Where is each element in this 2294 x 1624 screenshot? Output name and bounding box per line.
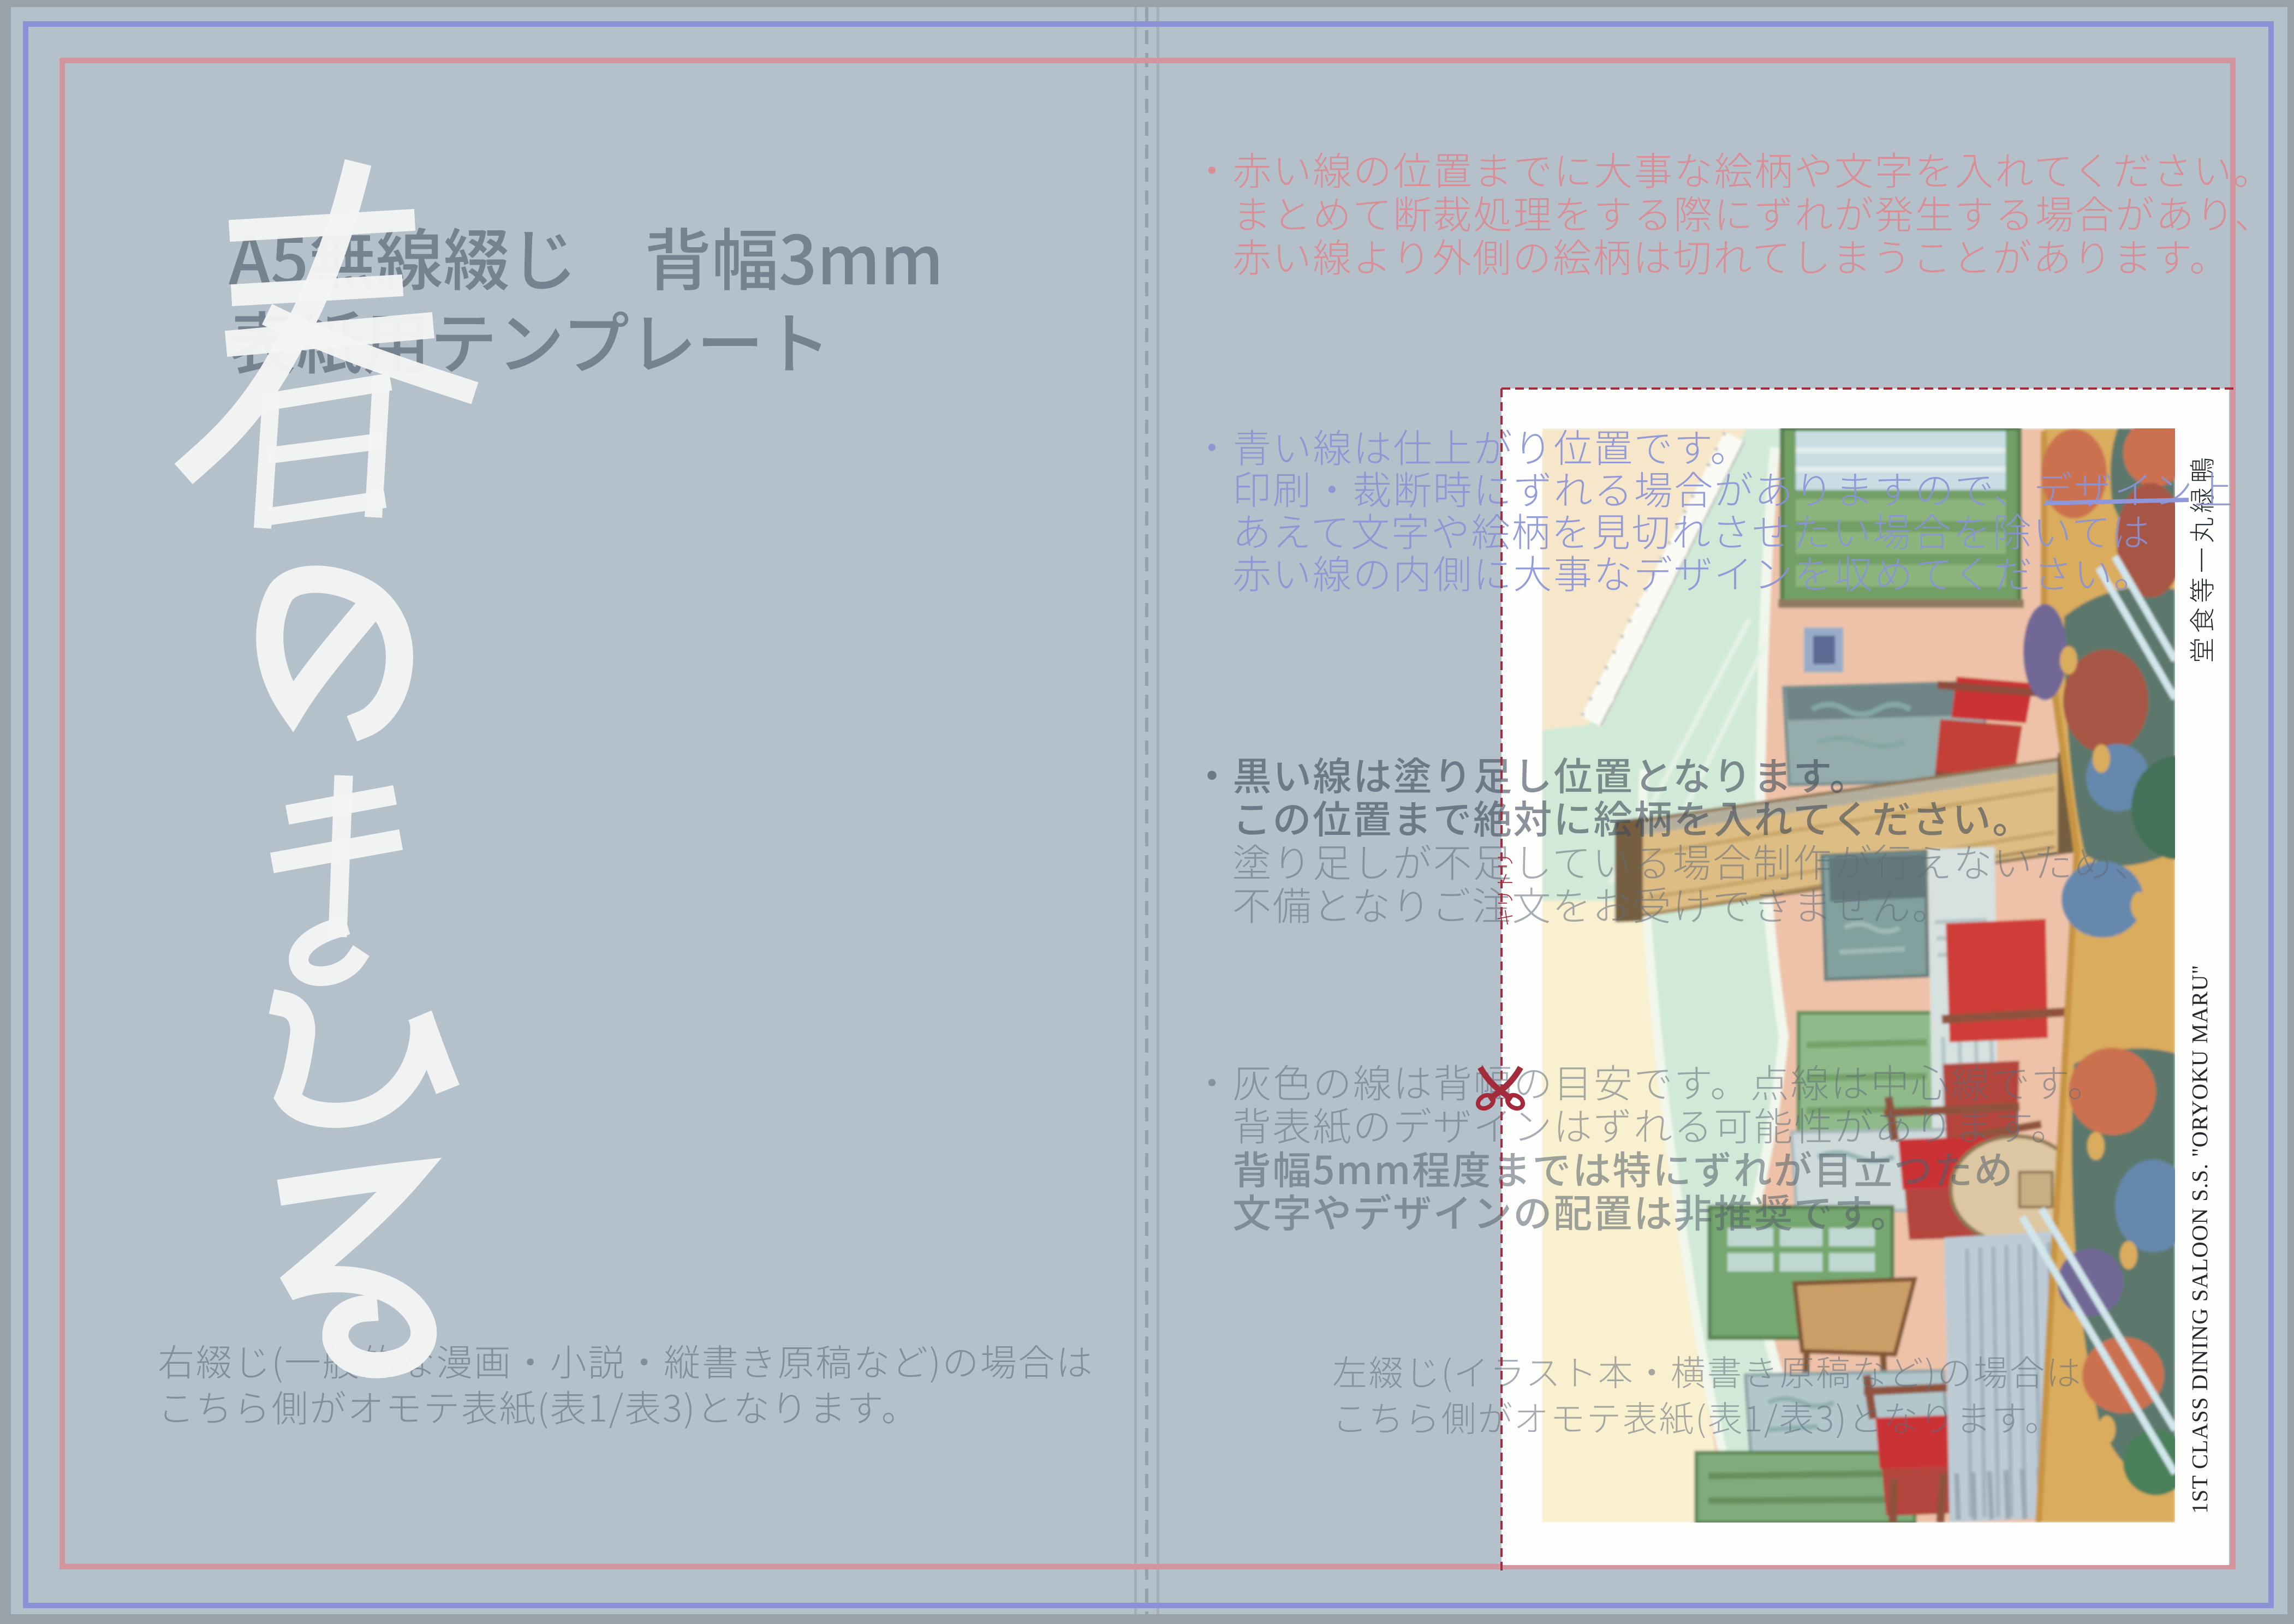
svg-text:キリトリ: キリトリ (1491, 852, 1517, 927)
